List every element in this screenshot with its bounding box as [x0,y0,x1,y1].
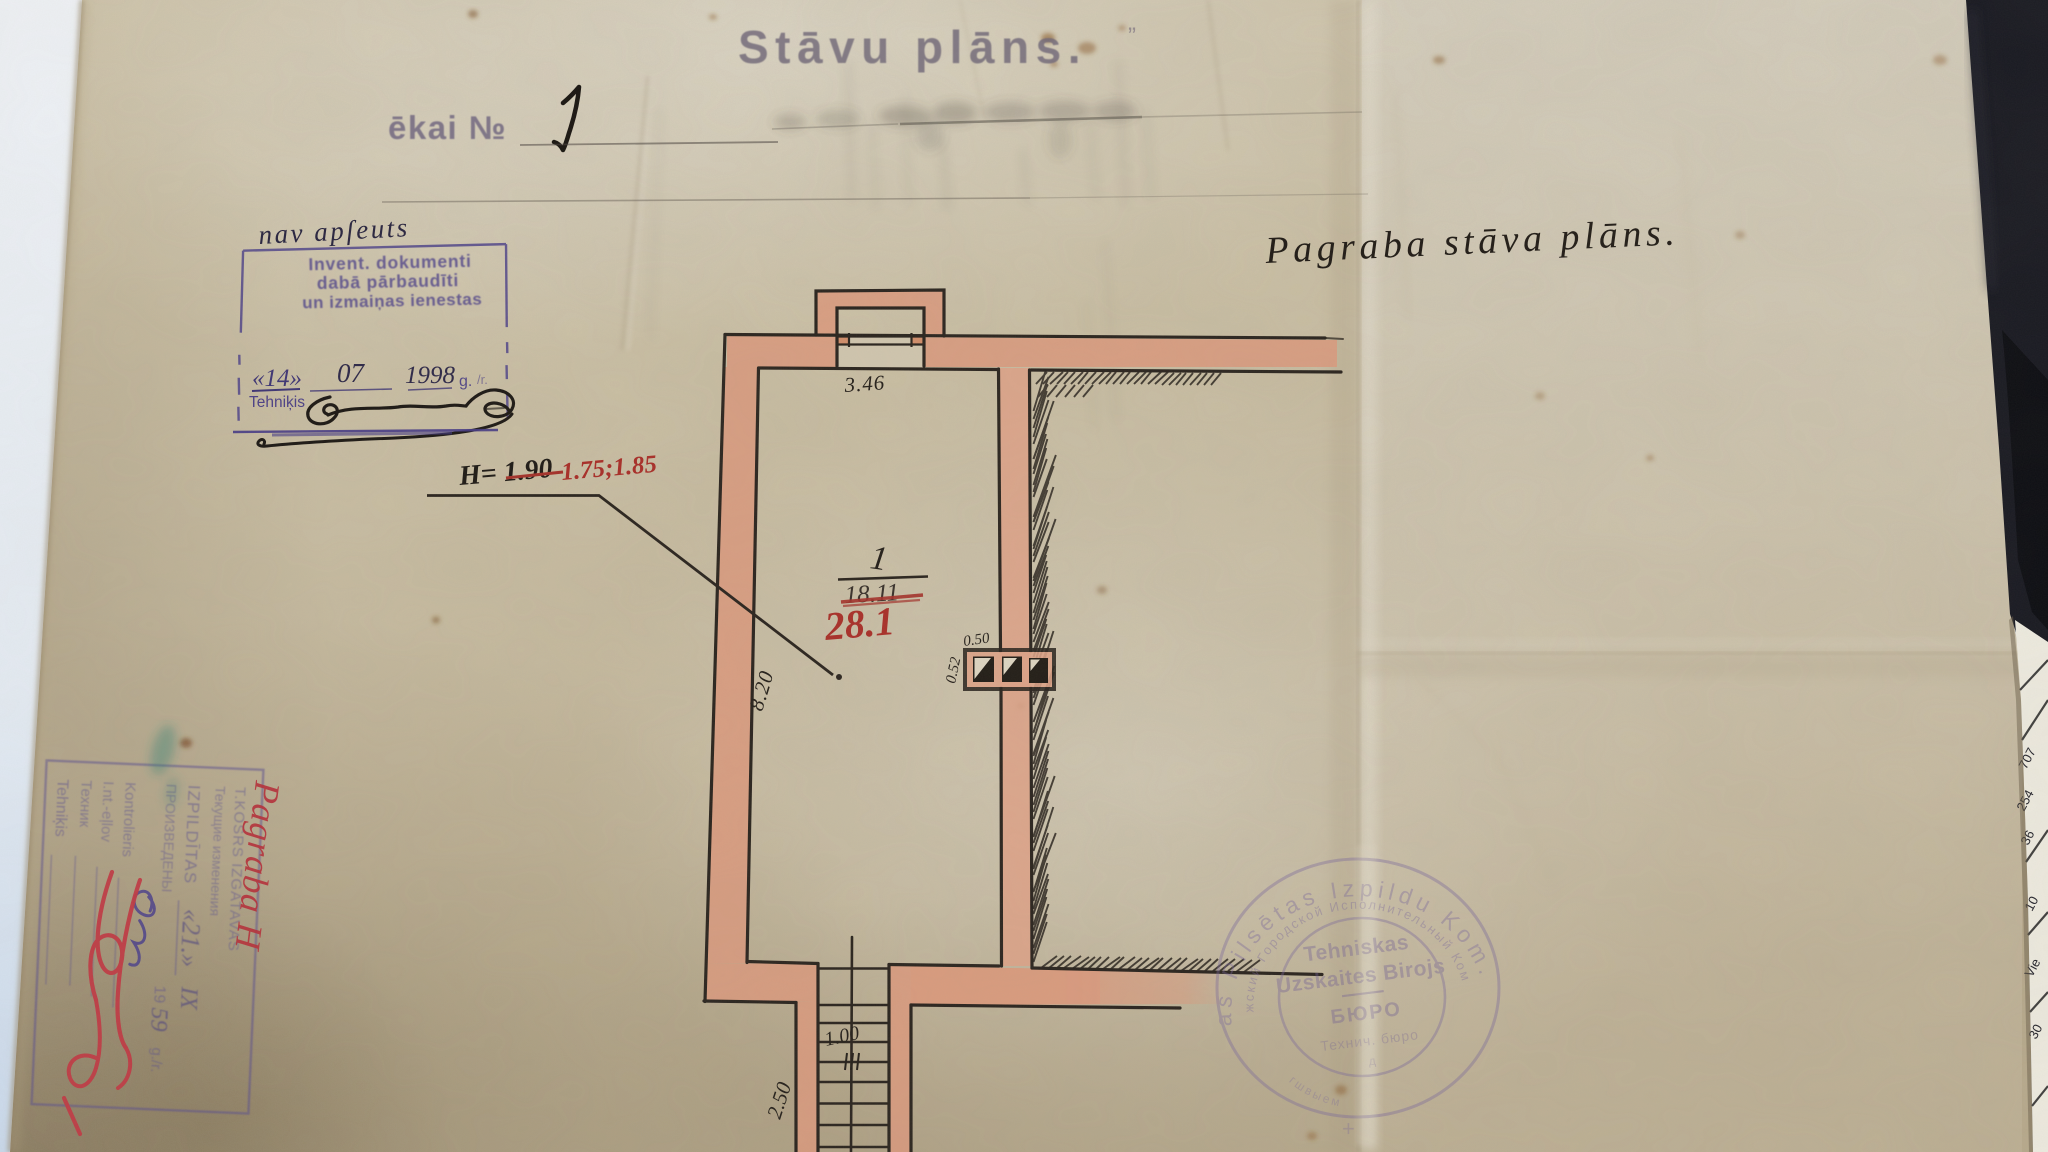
svg-text:28.1: 28.1 [822,598,897,649]
svg-text:«21.»: «21.» [175,908,207,968]
svg-text:Tehniķis: Tehniķis [249,394,305,411]
svg-text:”: ” [1128,23,1136,50]
svg-text:I.nt.-eļlov: I.nt.-eļlov [97,781,117,843]
svg-text:IX: IX [175,985,202,1011]
svg-text:g./r.: g./r. [147,1047,165,1073]
svg-text:+: + [1342,1116,1355,1141]
svg-text:Tehniķis: Tehniķis [51,779,71,837]
svg-text:59: 59 [145,1007,172,1032]
svg-text:ēkai №: ēkai № [388,109,507,146]
svg-text:un izmaiņas ienestas: un izmaiņas ienestas [302,290,482,313]
svg-text:Kontrolieris: Kontrolieris [118,782,138,858]
svg-text:07: 07 [337,358,366,388]
svg-text:Техник: Техник [76,780,95,828]
svg-text:/r.: /r. [477,372,488,387]
svg-text:«14»: «14» [252,365,302,392]
svg-text:19: 19 [150,985,168,1004]
svg-text:1998: 1998 [405,362,456,389]
svg-text:g.: g. [459,373,472,390]
svg-text:Stāvu plāns.: Stāvu plāns. [738,21,1087,73]
svg-text:3.46: 3.46 [843,370,886,397]
